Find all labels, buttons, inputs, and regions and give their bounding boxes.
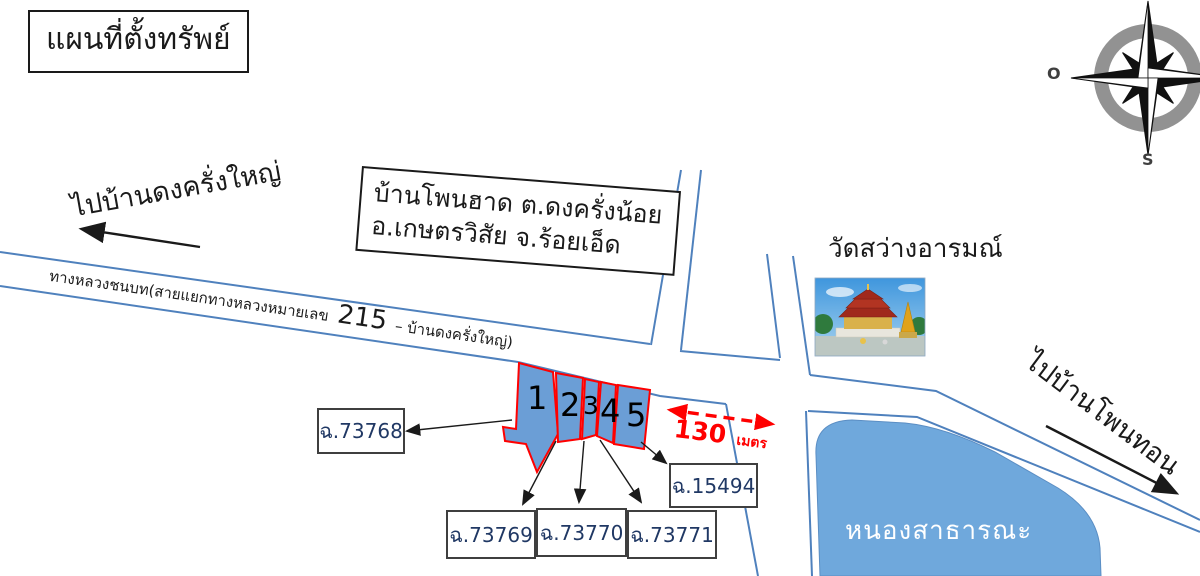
arrow-parcel3-deed [579, 441, 584, 502]
direction-arrow-left [82, 229, 200, 247]
arrow-parcel5-deed [641, 442, 666, 463]
parcel-number-2: 2 [560, 386, 580, 424]
arrow-parcel4-deed [600, 440, 641, 502]
temple-road-west-edge [767, 254, 780, 358]
deed-label-parcel5: ฉ.15494 [669, 463, 758, 508]
north-road-east-edge [681, 170, 701, 350]
temple-name-label: วัดสว่างอารมณ์ [828, 228, 1003, 269]
parcel-number-5: 5 [626, 396, 646, 434]
property-location-map: แผนที่ตั้งทรัพย์ ไปบ้านดงครั่งใหญ่ ทางหล… [0, 0, 1200, 576]
parcel-number-3: 3 [583, 391, 599, 420]
temple-photo [813, 278, 928, 356]
pond-shape [816, 420, 1101, 576]
deed-label-parcel1: ฉ.73768 [317, 408, 405, 454]
deed-label-parcel2: ฉ.73769 [446, 510, 536, 559]
parcel-number-1: 1 [527, 379, 547, 417]
deed-label-parcel3: ฉ.73770 [536, 508, 627, 557]
temple-road-east-edge [793, 256, 810, 375]
distance-value: 130 [672, 414, 727, 449]
compass-west-letter: O [1047, 64, 1061, 83]
distance-unit: เมตร [736, 433, 768, 453]
south-road-east-edge [806, 411, 812, 576]
deed-label-parcel4: ฉ.73771 [627, 510, 717, 559]
arrow-parcel1-deed [407, 420, 512, 431]
pond-name-label: หนองสาธารณะ [845, 510, 1032, 551]
map-title: แผนที่ตั้งทรัพย์ [28, 10, 249, 73]
junction-north-edge [680, 351, 780, 360]
parcel-number-4: 4 [600, 392, 620, 430]
compass-south-letter: S [1142, 150, 1154, 169]
compass-rose [1071, 1, 1200, 155]
